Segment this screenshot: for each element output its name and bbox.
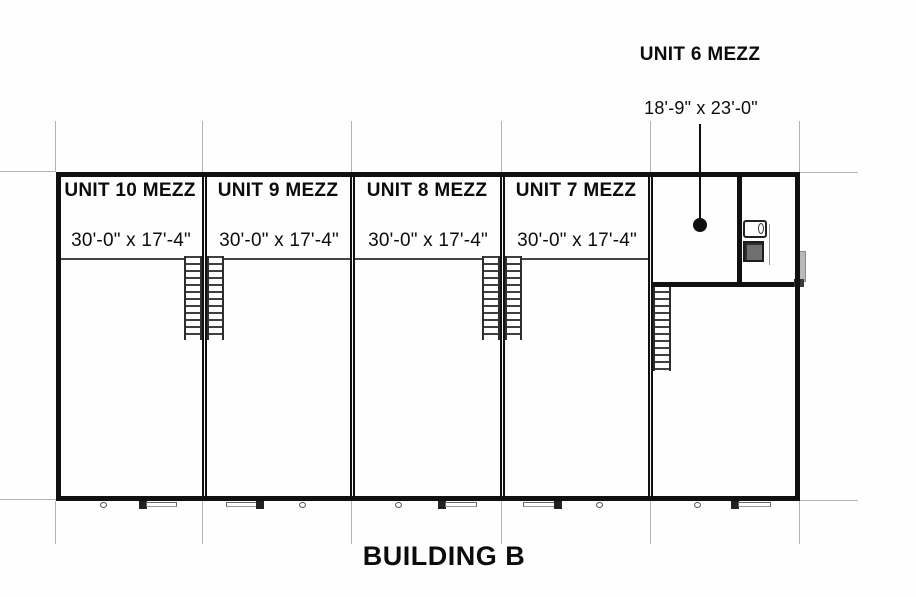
unit8-dimensions: 30'-0" x 17'-4" (368, 230, 488, 252)
unit-divider-wall (648, 177, 653, 496)
gridline (650, 501, 651, 544)
door-bar-mark (738, 502, 771, 507)
gridline (55, 501, 56, 544)
gridline (800, 172, 858, 173)
door-bar-mark (226, 502, 257, 507)
gridline (650, 121, 651, 172)
door-bar-mark (523, 502, 555, 507)
door-leaf (799, 251, 806, 282)
leader-dot-icon (693, 218, 707, 232)
door-bar-mark (146, 502, 177, 507)
gridline (501, 501, 502, 544)
door-knob-mark (395, 502, 402, 508)
unit6-label: UNIT 6 MEZZ (640, 44, 760, 66)
gridline (799, 501, 800, 544)
door-opener-mark (256, 501, 264, 509)
gridline (351, 501, 352, 544)
floor-plan-canvas: UNIT 10 MEZZ 30'-0" x 17'-4" UNIT 9 MEZZ… (0, 0, 916, 597)
drawing-title: BUILDING B (363, 541, 526, 572)
gridline (351, 121, 352, 172)
unit6-dimensions: 18'-9" x 23'-0" (644, 98, 758, 119)
unit7-label: UNIT 7 MEZZ (516, 180, 636, 202)
unit7-dimensions: 30'-0" x 17'-4" (517, 230, 637, 252)
door-knob-mark (596, 502, 603, 508)
unit9-label: UNIT 9 MEZZ (218, 180, 338, 202)
door-knob-mark (100, 502, 107, 508)
gridline (0, 171, 56, 172)
building-outline-wall (56, 172, 800, 501)
unit-divider-wall (350, 177, 355, 496)
door-knob-mark (299, 502, 306, 508)
leader-line (699, 124, 701, 222)
gridline (799, 121, 800, 172)
unit-divider-wall (500, 177, 505, 496)
door-knob-mark (694, 502, 701, 508)
gridline (800, 500, 858, 501)
door-opener-mark (554, 501, 562, 509)
gridline (55, 121, 56, 172)
unit8-label: UNIT 8 MEZZ (367, 180, 487, 202)
door-bar-mark (445, 502, 477, 507)
unit-divider-wall (202, 177, 207, 496)
unit10-label: UNIT 10 MEZZ (64, 180, 195, 202)
unit10-dimensions: 30'-0" x 17'-4" (71, 230, 191, 252)
gridline (202, 121, 203, 172)
gridline (202, 501, 203, 544)
gridline (0, 499, 56, 500)
gridline (501, 121, 502, 172)
unit9-dimensions: 30'-0" x 17'-4" (219, 230, 339, 252)
